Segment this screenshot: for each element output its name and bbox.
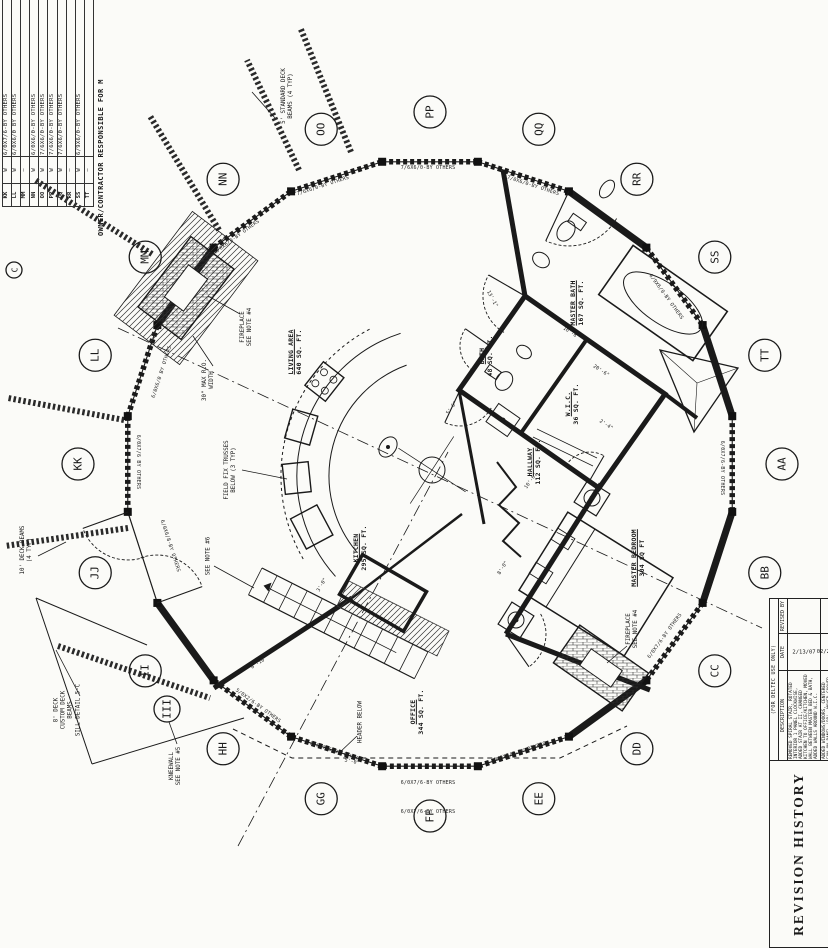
panel-marker-GG: GG bbox=[305, 783, 337, 815]
column-date: DATE bbox=[779, 633, 787, 670]
schedule-cell-mark: RR bbox=[66, 184, 75, 207]
schedule-cell-qty: W bbox=[75, 157, 84, 184]
svg-text:MM: MM bbox=[139, 250, 152, 264]
room-label-wic: W.I.C. 36 SQ. FT. bbox=[564, 383, 580, 424]
floor-plan-sheet: PPQQRRSSTTAABBCCDDEEFFGGHHIIJJKKLLMMNNOO… bbox=[0, 0, 828, 948]
revision-history-header: DESCRIPTION DATE REVISED BY bbox=[779, 599, 788, 760]
panel-marker-OO: OO bbox=[305, 113, 337, 145]
panel-marker-TT: TT bbox=[749, 339, 781, 371]
schedule-cell-mark: NN bbox=[30, 184, 39, 207]
revision-revised-by bbox=[788, 599, 820, 633]
schedule-row-PP: PPW7/6X6/0-BY OTHERS bbox=[48, 0, 57, 207]
svg-text:GG: GG bbox=[315, 792, 328, 805]
svg-text:EE: EE bbox=[532, 792, 545, 805]
schedule-cell-mark: QQ bbox=[57, 184, 66, 207]
panel-marker-BB: BB bbox=[749, 557, 781, 589]
wall-size-label-10: 6/0X7/6-BY OTHERS bbox=[401, 780, 456, 786]
schedule-cell-qty: W bbox=[39, 157, 48, 184]
schedule-cell-mark: SS bbox=[75, 184, 84, 207]
room-label-office: OFFICE 344 SQ. FT. bbox=[409, 689, 425, 734]
room-label-bath: BATH 48 SQ. FT. bbox=[478, 335, 494, 376]
schedule-row-KK: KKW6/0X7/6-BY OTHERS bbox=[3, 0, 12, 207]
panel-marker-QQ: QQ bbox=[523, 113, 555, 145]
svg-text:AA: AA bbox=[776, 457, 789, 471]
schedule-cell-size: 6/0X6/0 BY OTHERS bbox=[12, 0, 21, 157]
room-label-kitchen: KITCHEN 295 SQ. FT. bbox=[352, 525, 368, 570]
revision-row-2: ADDED WINDOWS/DOORS, CENTERED FAN ON PAN… bbox=[821, 599, 828, 760]
svg-text:NN: NN bbox=[217, 173, 230, 186]
panel-marker-MM: MM bbox=[129, 241, 161, 273]
column-description: DESCRIPTION bbox=[779, 670, 787, 760]
schedule-cell-size: 7/6X6/0-BY OTHERS bbox=[39, 0, 48, 157]
panel-marker-JJ: JJ bbox=[79, 557, 111, 589]
wall-size-label-11: 6/0X7/6-BY OTHERS bbox=[401, 809, 456, 815]
note-custom-deck: 8' DECK CUSTOM DECK BEAMS SILL DETAIL 5-… bbox=[54, 684, 83, 736]
room-label-living-area: LIVING AREA 640 SQ. FT. bbox=[287, 329, 303, 374]
panel-marker-II: II bbox=[129, 655, 161, 687]
svg-text:TT: TT bbox=[758, 348, 771, 362]
schedule-cell-qty: — bbox=[21, 157, 30, 184]
center-mark bbox=[398, 436, 465, 503]
schedule-cell-qty: W bbox=[48, 157, 57, 184]
revision-revised-by bbox=[821, 599, 828, 633]
schedule-row-QQ: QQW7/6X6/0-BY OTHERS bbox=[57, 0, 66, 207]
stairs bbox=[248, 568, 449, 679]
note-header-below: HEADER BELOW bbox=[357, 701, 364, 743]
window-schedule-table: KKW6/0X7/6-BY OTHERSLLW6/0X6/0 BY OTHERS… bbox=[2, 2, 94, 207]
svg-text:OO: OO bbox=[315, 123, 328, 136]
svg-text:RR: RR bbox=[630, 172, 643, 186]
schedule-cell-size: 6/0X6/0-BY OTHERS bbox=[30, 0, 39, 157]
note-kneewall: KNEEWALL SEE NOTE #5 bbox=[169, 747, 183, 785]
wall-size-label-0: 7/6X6/0-BY OTHERS bbox=[401, 165, 456, 171]
panel-marker-EE: EE bbox=[523, 783, 555, 815]
schedule-cell-size: 7/6X6/0-BY OTHERS bbox=[48, 0, 57, 157]
svg-text:BB: BB bbox=[758, 566, 771, 580]
schedule-cell-size bbox=[84, 0, 93, 157]
svg-text:QQ: QQ bbox=[532, 123, 545, 136]
schedule-row-RR: RR— bbox=[66, 0, 75, 207]
panel-marker-PP: PP bbox=[414, 96, 446, 128]
svg-text:II: II bbox=[139, 664, 152, 677]
revision-description: REMOVED SPIRAL STAIR, ROTATED INTERIOR 1… bbox=[788, 670, 820, 760]
revision-description: ADDED WINDOWS/DOORS, CENTERED FAN ON PAN… bbox=[821, 670, 828, 760]
panel-marker-FF: FF bbox=[414, 800, 446, 832]
wall-size-label-5: 6/0X7/6-BY OTHERS bbox=[719, 441, 725, 496]
schedule-cell-qty: W bbox=[3, 157, 12, 184]
schedule-row-SS: SSW6/9X6/0-BY OTHERS bbox=[75, 0, 84, 207]
schedule-cell-qty: W bbox=[30, 157, 39, 184]
schedule-cell-qty: — bbox=[84, 157, 93, 184]
schedule-cell-mark: MM bbox=[21, 184, 30, 207]
panel-marker-RR: RR bbox=[621, 163, 653, 195]
schedule-cell-mark: PP bbox=[48, 184, 57, 207]
svg-text:CC: CC bbox=[708, 664, 721, 677]
revision-history-block: REVISION HISTORY (FOR DELTEC USE ONLY) D… bbox=[769, 598, 828, 948]
panel-marker-SS: SS bbox=[699, 241, 731, 273]
revision-date: 02/23/07 bbox=[821, 633, 828, 670]
schedule-cell-qty: W bbox=[57, 157, 66, 184]
note-max-ro-width: 30" MAX R.O. WIDTH bbox=[202, 359, 216, 401]
schedule-row-LL: LLW6/0X6/0 BY OTHERS bbox=[12, 0, 21, 207]
schedule-cell-mark: TT bbox=[84, 184, 93, 207]
panel-marker-LL: LL bbox=[79, 339, 111, 371]
svg-text:KK: KK bbox=[72, 457, 85, 471]
panel-marker-HH: HH bbox=[207, 733, 239, 765]
wall-size-label-6: 6/0X7/6 BY OTHERS bbox=[135, 435, 141, 490]
svg-text:C: C bbox=[11, 267, 20, 272]
note-fireplace-note-bottom-right: FIREPLACE SEE NOTE #4 bbox=[626, 610, 640, 648]
svg-text:HH: HH bbox=[217, 742, 230, 755]
svg-text:JJ: JJ bbox=[89, 566, 102, 579]
panel-marker-AA: AA bbox=[766, 448, 798, 480]
schedule-row-TT: TT— bbox=[84, 0, 93, 207]
panel-marker-KK: KK bbox=[62, 448, 94, 480]
revision-row-1: REMOVED SPIRAL STAIR, ROTATED INTERIOR 1… bbox=[788, 599, 821, 760]
schedule-cell-qty: — bbox=[66, 157, 75, 184]
schedule-row-OO: OOW7/6X6/0-BY OTHERS bbox=[39, 0, 48, 207]
schedule-cell-qty: W bbox=[12, 157, 21, 184]
bath-fixtures bbox=[485, 177, 738, 436]
panel-marker-III: III bbox=[154, 696, 180, 722]
schedule-cell-size: 7/6X6/0-BY OTHERS bbox=[57, 0, 66, 157]
column-revised-by: REVISED BY bbox=[779, 599, 787, 633]
revision-history-title: REVISION HISTORY bbox=[770, 760, 828, 947]
note-deck-beams-10ft: 10' DECK BEAMS (4 TYP) bbox=[20, 526, 34, 575]
note-field-fix-trusses: FIELD FIX TRUSSES BELOW (3 TYP) bbox=[224, 440, 238, 499]
schedule-cell-mark: OO bbox=[39, 184, 48, 207]
floor-plan-drawing: PPQQRRSSTTAABBCCDDEEFFGGHHIIJJKKLLMMNNOO… bbox=[0, 0, 828, 948]
room-label-master-bedroom: MASTER BEDROOM 304 SQ FT bbox=[630, 529, 646, 587]
schedule-row-NN: NNW6/0X6/0-BY OTHERS bbox=[30, 0, 39, 207]
panel-marker-NN: NN bbox=[207, 163, 239, 195]
schedule-cell-mark: LL bbox=[12, 184, 21, 207]
schedule-cell-mark: KK bbox=[3, 184, 12, 207]
note-deck-beams-5ft: 5' STANDARD DECK BEAMS (4 TYP) bbox=[281, 68, 295, 124]
panel-markers: PPQQRRSSTTAABBCCDDEEFFGGHHIIJJKKLLMMNNOO… bbox=[6, 96, 798, 832]
room-label-master-bath: MASTER BATH 167 SQ. FT. bbox=[569, 280, 585, 325]
panel-marker-CC: CC bbox=[699, 655, 731, 687]
header-below-line bbox=[233, 726, 627, 758]
svg-text:DD: DD bbox=[630, 742, 643, 755]
note-see-note-6: SEE NOTE #6 bbox=[205, 537, 212, 575]
svg-text:PP: PP bbox=[424, 105, 437, 119]
owner-contractor-note: OWNER/CONTRACTOR RESPONSIBLE FOR M bbox=[97, 0, 109, 236]
note-fireplace-note-upper-left: FIREPLACE SEE NOTE #4 bbox=[240, 308, 254, 346]
svg-text:SS: SS bbox=[708, 250, 721, 263]
revision-date: 2/13/07 bbox=[788, 633, 820, 670]
panel-marker-DD: DD bbox=[621, 733, 653, 765]
schedule-cell-size bbox=[66, 0, 75, 157]
svg-text:III: III bbox=[161, 699, 174, 719]
svg-text:LL: LL bbox=[89, 348, 102, 362]
schedule-cell-size: 6/9X6/0-BY OTHERS bbox=[75, 0, 84, 157]
schedule-row-MM: MM— bbox=[21, 0, 30, 207]
deltec-use-only-note: (FOR DELTEC USE ONLY) bbox=[770, 599, 779, 760]
schedule-cell-size: 6/0X7/6-BY OTHERS bbox=[3, 0, 12, 157]
panel-marker-C: C bbox=[6, 262, 22, 278]
schedule-cell-size bbox=[21, 0, 30, 157]
